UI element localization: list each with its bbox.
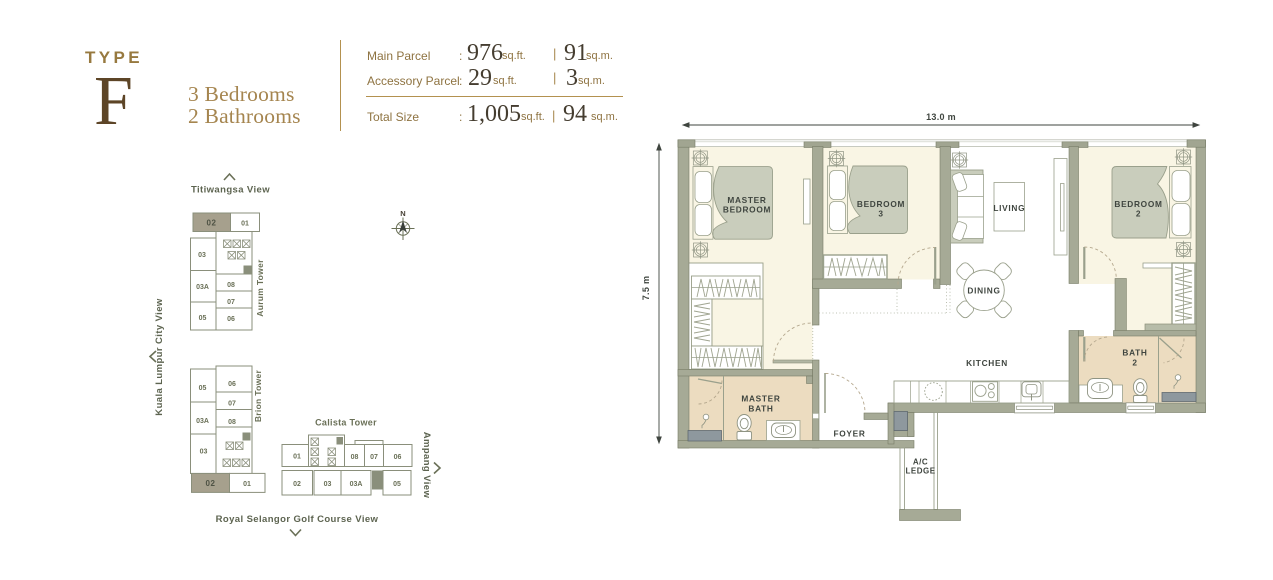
svg-text:A/C: A/C — [913, 458, 928, 467]
svg-text:KITCHEN: KITCHEN — [966, 358, 1008, 368]
svg-text:08: 08 — [228, 419, 236, 426]
svg-text:03A: 03A — [350, 481, 363, 488]
svg-text:06: 06 — [227, 316, 235, 323]
svg-text:Kuala Lumpur City View: Kuala Lumpur City View — [154, 298, 165, 416]
svg-text:Titiwangsa View: Titiwangsa View — [191, 185, 270, 196]
svg-text:2: 2 — [1136, 209, 1141, 219]
svg-text:01: 01 — [293, 454, 301, 461]
svg-text:03: 03 — [198, 252, 206, 259]
svg-text:07: 07 — [370, 454, 378, 461]
svg-text:07: 07 — [228, 401, 236, 408]
svg-text:02: 02 — [293, 481, 301, 488]
svg-text:Calista Tower: Calista Tower — [315, 418, 377, 428]
svg-text:02: 02 — [206, 479, 216, 488]
svg-text:FOYER: FOYER — [833, 429, 865, 439]
svg-text:03: 03 — [324, 481, 332, 488]
svg-text:3: 3 — [878, 209, 883, 219]
svg-text:01: 01 — [243, 481, 251, 488]
svg-text:06: 06 — [394, 454, 402, 461]
svg-text:BEDROOM: BEDROOM — [723, 205, 771, 215]
svg-text:MASTER: MASTER — [741, 394, 780, 404]
svg-text:LEDGE: LEDGE — [905, 467, 935, 476]
svg-text:07: 07 — [227, 299, 235, 306]
svg-text:MASTER: MASTER — [727, 195, 766, 205]
svg-text:BEDROOM: BEDROOM — [857, 199, 905, 209]
svg-text:03A: 03A — [196, 284, 209, 291]
svg-text:05: 05 — [199, 315, 207, 322]
svg-text:03: 03 — [200, 449, 208, 456]
svg-text:BATH: BATH — [748, 404, 773, 414]
svg-text:13.0 m: 13.0 m — [926, 112, 956, 122]
svg-text:DINING: DINING — [967, 285, 1000, 295]
svg-text:Brion Tower: Brion Tower — [253, 369, 263, 422]
svg-text:Aurum Tower: Aurum Tower — [255, 259, 265, 317]
svg-text:Royal Selangor Golf Course Vie: Royal Selangor Golf Course View — [216, 514, 379, 525]
svg-text:03A: 03A — [196, 418, 209, 425]
svg-text:Ampang View: Ampang View — [421, 432, 432, 499]
svg-text:N: N — [400, 209, 405, 218]
svg-text:06: 06 — [228, 381, 236, 388]
svg-text:LIVING: LIVING — [993, 203, 1025, 213]
svg-text:7.5 m: 7.5 m — [641, 276, 651, 301]
svg-text:2: 2 — [1132, 358, 1137, 368]
svg-text:02: 02 — [207, 219, 217, 228]
svg-text:05: 05 — [199, 385, 207, 392]
svg-text:BEDROOM: BEDROOM — [1114, 199, 1162, 209]
svg-text:01: 01 — [241, 221, 249, 228]
svg-text:08: 08 — [351, 454, 359, 461]
svg-text:08: 08 — [227, 282, 235, 289]
svg-text:BATH: BATH — [1122, 348, 1147, 358]
svg-text:05: 05 — [393, 481, 401, 488]
